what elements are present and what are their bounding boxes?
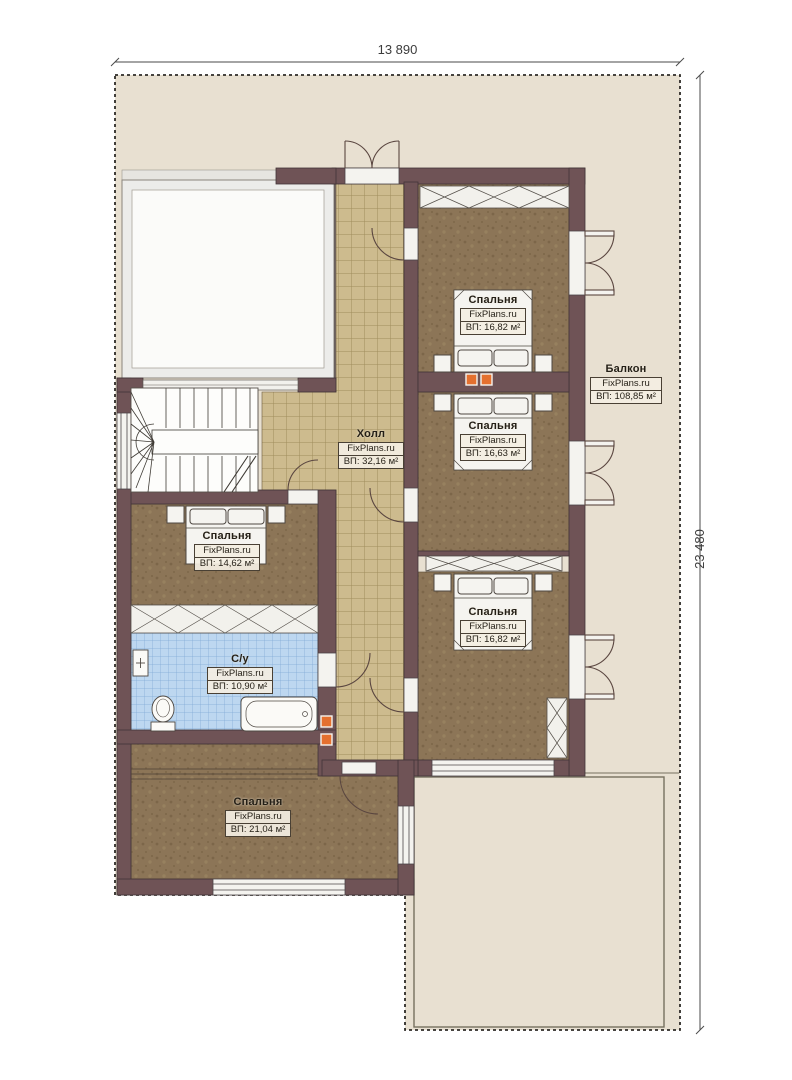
window xyxy=(398,806,414,864)
bathtub-icon xyxy=(241,697,317,731)
dimension-line-top xyxy=(111,58,684,66)
wardrobe-icon xyxy=(426,556,562,571)
balcony-door-2 xyxy=(569,441,585,505)
dimension-width-label: 13 890 xyxy=(115,42,680,57)
vent-marker xyxy=(481,374,492,385)
vent-marker xyxy=(321,734,332,745)
door-bathroom xyxy=(318,653,336,687)
door-bedroom-bottom xyxy=(342,762,376,774)
window xyxy=(117,413,131,489)
terrace-area xyxy=(414,773,679,1027)
balcony-door-3 xyxy=(569,635,585,699)
wardrobe-icon xyxy=(131,605,318,633)
vent-marker xyxy=(321,716,332,727)
stairs xyxy=(131,388,258,492)
floor-plan-page: 13 890 23 480 Спальня FixPlans.ru ВП: 16… xyxy=(0,0,792,1080)
hall-entry-door xyxy=(345,168,399,184)
door-bedroom-top-right xyxy=(404,228,418,260)
door-bedroom-mid-right xyxy=(404,488,418,522)
window xyxy=(213,879,345,895)
vent-marker xyxy=(466,374,477,385)
toilet-icon xyxy=(151,696,175,731)
door-bedroom-bottom-right xyxy=(404,678,418,712)
balcony-door-1 xyxy=(569,231,585,295)
wardrobe-icon xyxy=(420,186,569,208)
window xyxy=(432,760,554,776)
door-bedroom-left xyxy=(288,490,318,504)
dimension-height-label: 23 480 xyxy=(692,513,708,585)
sink-icon xyxy=(133,650,148,676)
void-area xyxy=(122,170,335,378)
wardrobe-icon xyxy=(547,698,567,758)
floor-plan-drawing xyxy=(0,0,792,1080)
